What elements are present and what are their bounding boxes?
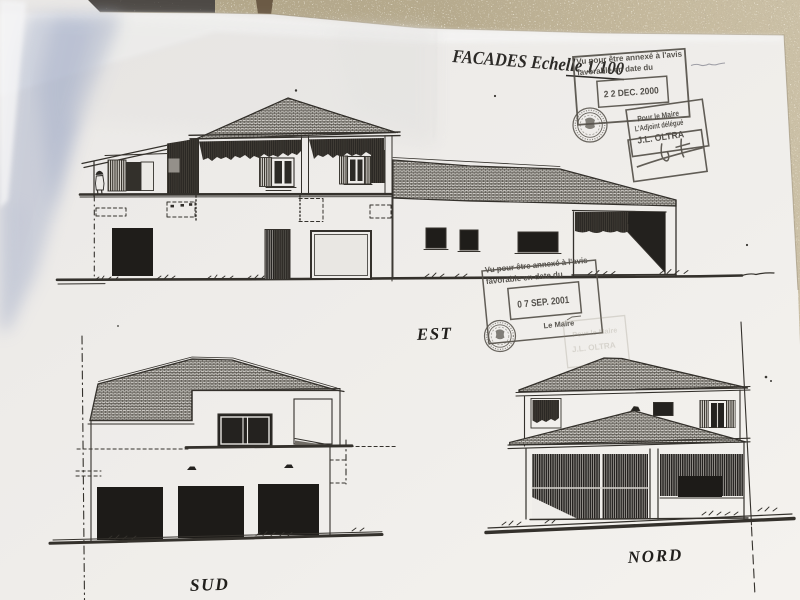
svg-text:NORD: NORD — [626, 545, 683, 567]
svg-text:SUD: SUD — [189, 574, 229, 595]
svg-text:EST: EST — [415, 324, 452, 344]
